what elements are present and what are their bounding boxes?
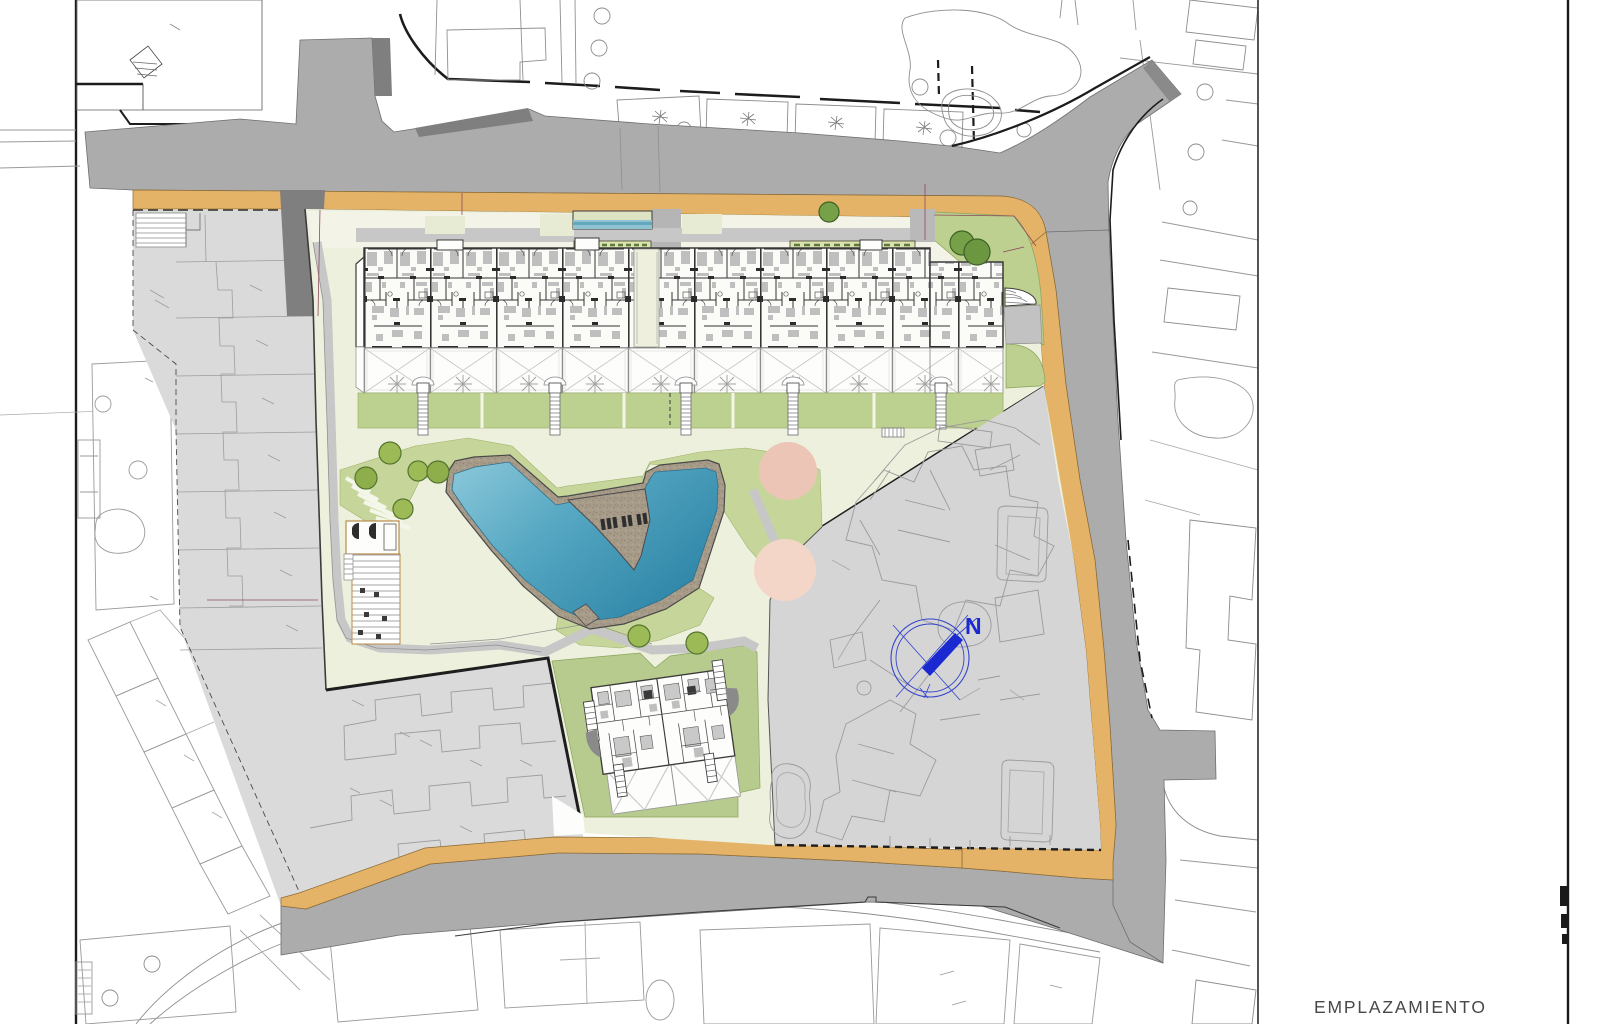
svg-text:EMPLAZAMIENTO: EMPLAZAMIENTO	[1314, 997, 1487, 1017]
svg-text:N: N	[965, 613, 982, 639]
